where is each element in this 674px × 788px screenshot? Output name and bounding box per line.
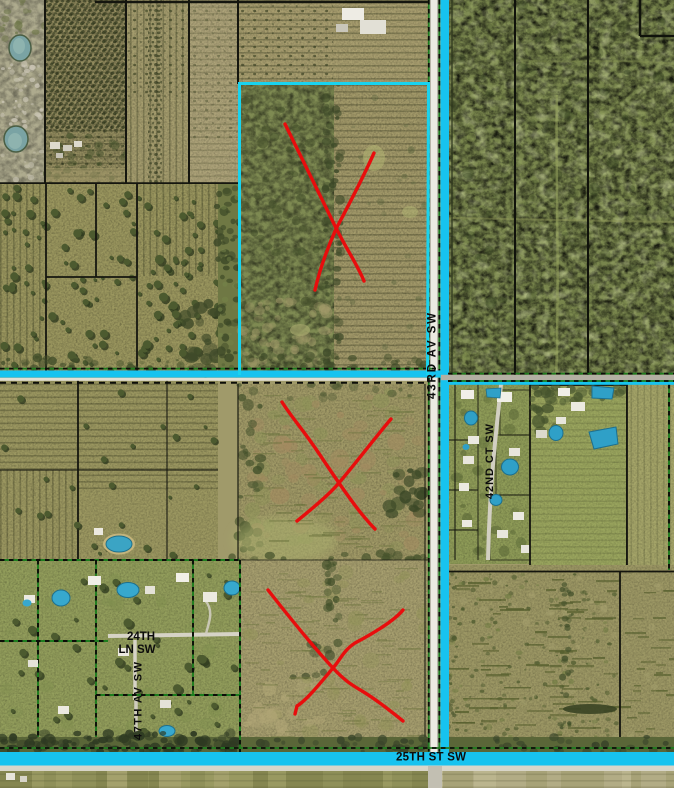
svg-text:42ND CT SW: 42ND CT SW: [484, 423, 496, 499]
svg-text:47TH AV SW: 47TH AV SW: [133, 661, 145, 740]
svg-text:24TH: 24TH: [127, 631, 155, 643]
svg-text:LN SW: LN SW: [118, 644, 155, 656]
svg-text:25TH ST SW: 25TH ST SW: [396, 752, 466, 764]
svg-text:43RD AV SW: 43RD AV SW: [427, 313, 439, 399]
